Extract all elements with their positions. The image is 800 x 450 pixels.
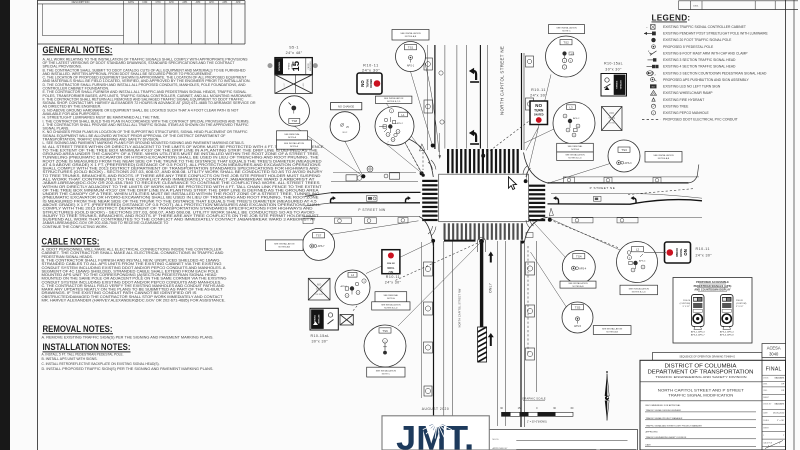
svg-text:ENFORCED: ENFORCED <box>310 61 312 71</box>
svg-text:24”x 48”: 24”x 48” <box>286 51 303 55</box>
svg-text:APR.: APR. <box>209 1 215 4</box>
svg-text:SEE INSTALLATION: SEE INSTALLATION <box>556 27 577 30</box>
svg-text:PEDESTRIAN SIGNALS (APS): PEDESTRIAN SIGNALS (APS) <box>694 285 732 288</box>
svg-text:RECOMMENDED FOR APPROVAL: RECOMMENDED FOR APPROVAL <box>646 404 682 407</box>
svg-text:9” X 12”: 9” X 12” <box>683 306 691 308</box>
svg-text:2: 2 <box>357 293 358 295</box>
svg-text:APS-5: APS-5 <box>574 325 582 328</box>
svg-text:1: 1 <box>387 135 388 137</box>
svg-text:NO: NO <box>317 283 322 287</box>
svg-text:L4: L4 <box>351 273 355 277</box>
svg-text:NORTH CAPITOL STREET AND P: NORTH CAPITOL STREET AND P STREET <box>658 388 744 392</box>
svg-text:TRAFFIC ENGINEERING SAFETY: TRAFFIC ENGINEERING SAFETY DIVISION <box>646 436 687 439</box>
svg-text:NOTE A: NOTE A <box>290 145 299 148</box>
svg-text:30”x 30”: 30”x 30” <box>605 67 622 71</box>
svg-text:P STREET NW: P STREET NW <box>358 208 385 212</box>
svg-text:NO: NO <box>388 270 393 274</box>
svg-text:08-05-2020: 08-05-2020 <box>773 412 785 414</box>
svg-text:MR. HARVEY ALEXANDER (HARVEY.A: MR. HARVEY ALEXANDER (HARVEY.ALEXANDER@D… <box>42 298 226 302</box>
svg-text:TURN: TURN <box>679 248 683 256</box>
svg-text:NOTES B,C,D: NOTES B,C,D <box>384 307 398 309</box>
svg-text:SEE INSTALLATION: SEE INSTALLATION <box>381 303 401 306</box>
svg-text:TRAFFIC SIGNAL PROJECT MANA: TRAFFIC SIGNAL PROJECT MANAGER <box>646 417 683 420</box>
svg-text:TURN: TURN <box>365 79 369 87</box>
svg-text:CHK.: CHK. <box>763 390 768 392</box>
svg-text:DATE: DATE <box>128 1 134 4</box>
svg-text:TURN: TURN <box>387 266 394 270</box>
svg-text:NO./%: NO./% <box>493 439 499 441</box>
svg-text:SEE INSTALLATION: SEE INSTALLATION <box>384 97 404 100</box>
svg-text:TS7: TS7 <box>316 234 322 238</box>
svg-text:6: 6 <box>577 126 578 128</box>
svg-text:COR.: COR. <box>142 2 148 4</box>
svg-text:24”x 30”: 24”x 30” <box>696 253 713 257</box>
svg-text:APR.: APR. <box>196 1 202 4</box>
svg-text:5: 5 <box>346 296 347 298</box>
svg-text:CONTINUE THE CONFLICTING WORK.: CONTINUE THE CONFLICTING WORK. <box>43 225 108 229</box>
svg-text:15: 15 <box>291 60 302 71</box>
svg-text:1: 1 <box>763 435 764 437</box>
svg-text:NORTH CAPITOL STREET NE: NORTH CAPITOL STREET NE <box>500 46 505 115</box>
svg-text:SEE INSTALLATION: SEE INSTALLATION <box>629 287 650 290</box>
svg-text:PROPOSED ACCESSIBLE: PROPOSED ACCESSIBLE <box>696 281 729 284</box>
svg-text:SCALE: SCALE <box>763 419 769 422</box>
svg-text:NLT: NLT <box>652 86 655 88</box>
svg-text:CHN.: CHN. <box>155 2 161 4</box>
svg-text:NOTES B,C,D: NOTES B,C,D <box>568 158 582 160</box>
svg-text:DSGN. BY: DSGN. BY <box>763 403 772 405</box>
svg-text:R10-15aL: R10-15aL <box>604 62 623 66</box>
svg-text:AND COUNTDOWN DISPLAY: AND COUNTDOWN DISPLAY <box>694 288 731 291</box>
svg-text:(CUSTOM): (CUSTOM) <box>736 303 747 305</box>
svg-text:TURNING: TURNING <box>616 80 618 89</box>
svg-text:TURN: TURN <box>608 117 615 120</box>
svg-text:EXISTING PENDANT POST STREETLI: EXISTING PENDANT POST STREETLIGHT POLE W… <box>663 32 769 36</box>
svg-text:4: 4 <box>397 132 398 134</box>
svg-text:NOTES A,B: NOTES A,B <box>573 285 585 288</box>
svg-text:LEGEND:: LEGEND: <box>652 13 691 22</box>
svg-text:SHEET: SHEET <box>763 427 769 429</box>
svg-text:FINAL: FINAL <box>766 366 782 372</box>
svg-text:APS-2: APS-2 <box>573 117 580 120</box>
svg-text:NOTES B,C,D: NOTES B,C,D <box>387 101 401 103</box>
svg-text:SEE INSTALLATION: SEE INSTALLATION <box>400 32 421 35</box>
svg-text:GAB/AMS: GAB/AMS <box>774 377 785 380</box>
svg-text:ONLY: ONLY <box>489 282 493 293</box>
svg-text:APR.: APR. <box>182 1 188 4</box>
svg-text:AUGUST 2020: AUGUST 2020 <box>422 407 449 411</box>
svg-text:TRAFFIC SIGNAL MODIFICATION: TRAFFIC SIGNAL MODIFICATION <box>668 393 734 397</box>
svg-text:R10-11: R10-11 <box>696 247 711 251</box>
svg-text:R10-11: R10-11 <box>531 88 546 92</box>
svg-text:1: 1 <box>567 130 568 132</box>
svg-text:APR.: APR. <box>236 1 242 4</box>
svg-text:DRN.: DRN. <box>763 384 768 386</box>
svg-text:APR.: APR. <box>222 1 228 4</box>
svg-text:GRAPHIC SCALE: GRAPHIC SCALE <box>522 397 546 401</box>
svg-text:EXISTING LED NO LEFT TURN SIGN: EXISTING LED NO LEFT TURN SIGN <box>663 85 721 89</box>
svg-text:NORTH CAPITOL STREET NW: NORTH CAPITOL STREET NW <box>458 288 461 327</box>
svg-text:NOTES A,B: NOTES A,B <box>606 330 618 333</box>
svg-text:NOTE A: NOTE A <box>288 136 297 139</box>
svg-text:S5-1: S5-1 <box>289 45 299 49</box>
svg-text:R10-15aL: R10-15aL <box>311 334 330 338</box>
svg-text:EXISTING 3 SECTION TRAFFIC SIG: EXISTING 3 SECTION TRAFFIC SIGNAL HEAD <box>663 58 736 62</box>
svg-text:ON RED: ON RED <box>675 248 678 258</box>
svg-text:GAB/AMS: GAB/AMS <box>774 402 785 405</box>
svg-text:SEE REMOVAL: SEE REMOVAL <box>284 133 300 136</box>
svg-text:DISTRICT OF COLUMBIA: DISTRICT OF COLUMBIA <box>665 363 738 369</box>
svg-text:C. INSTALL RETROREFLECTIVE BAC: C. INSTALL RETROREFLECTIVE BACKPLATE ON … <box>42 362 160 366</box>
svg-text:TS4: TS4 <box>576 255 582 259</box>
svg-text:APS-7: APS-7 <box>318 245 326 248</box>
svg-text:APS-3: APS-3 <box>625 162 633 165</box>
svg-text:APS-5, APS-7: APS-5, APS-7 <box>691 334 706 337</box>
svg-text:24”x 30”: 24”x 30” <box>362 69 380 73</box>
svg-text:2: 2 <box>642 267 643 269</box>
svg-text:APS-1: APS-1 <box>407 64 415 67</box>
svg-text:ON RED: ON RED <box>608 123 616 125</box>
svg-text:SEE INSTALLATION: SEE INSTALLATION <box>565 154 585 157</box>
svg-text:DSGN.: DSGN. <box>763 378 769 380</box>
svg-text:L1: L1 <box>401 113 405 117</box>
svg-text:9: 9 <box>573 135 574 137</box>
svg-text:SHEET: SHEET <box>763 397 769 399</box>
svg-text:NO: NO <box>609 111 614 115</box>
svg-text:EXISTING 2-SECTION COUNTDOWN P: EXISTING 2-SECTION COUNTDOWN PEDESTRIAN … <box>663 71 767 75</box>
svg-text:TS5: TS5 <box>575 306 581 310</box>
svg-text:7: 7 <box>632 270 633 272</box>
svg-text:APS-4: APS-4 <box>579 267 587 270</box>
svg-text:SEE INSTALLATION: SEE INSTALLATION <box>602 327 623 330</box>
svg-text:A. INSTALL 5 FT. TALL PEDESTRI: A. INSTALL 5 FT. TALL PEDESTRIAN PEDESTA… <box>42 352 124 356</box>
svg-text:EXISTING 8-FOOT MAST ARM WITH: EXISTING 8-FOOT MAST ARM WITH CAP AND CL… <box>663 51 748 55</box>
svg-text:1” = 30’: 1” = 30’ <box>777 420 785 422</box>
svg-text:NOTES A,B: NOTES A,B <box>278 246 290 249</box>
svg-text:TRAFFIC SIGNAL DESIGN ENGIN: TRAFFIC SIGNAL DESIGN ENGINEER <box>646 409 682 412</box>
svg-text:TS3: TS3 <box>621 148 627 152</box>
svg-text:PROPOSED APS PUSHBUTTON AND SI: PROPOSED APS PUSHBUTTON AND SIGN ASSEMBL… <box>663 78 749 82</box>
svg-text:APS-1, APS-3: APS-1, APS-3 <box>691 330 706 333</box>
svg-text:EXISTING FIRE HYDRANT: EXISTING FIRE HYDRANT <box>663 98 704 102</box>
svg-text:TRAFFIC ENGINEERING AND: TRAFFIC ENGINEERING AND SAFETY DIVISION <box>656 375 747 379</box>
svg-text:R10-26: R10-26 <box>683 300 691 302</box>
svg-text:TURN: TURN <box>534 109 544 113</box>
svg-text:EXISTING WHEELCHAIR RAMP: EXISTING WHEELCHAIR RAMP <box>663 91 713 95</box>
svg-text:(CUSTOM): (CUSTOM) <box>680 303 691 305</box>
svg-text:SEE INSTALLATION: SEE INSTALLATION <box>568 282 588 285</box>
svg-text:3: 3 <box>564 116 565 118</box>
svg-text:TRAFFIC SIGNAL AND STREET: TRAFFIC SIGNAL AND STREET LIGHT PROJECT … <box>646 425 703 428</box>
svg-text:TS8: TS8 <box>292 119 298 123</box>
svg-text:CABLE NOTES:: CABLE NOTES: <box>42 236 100 246</box>
svg-text:TS6: TS6 <box>382 329 388 333</box>
svg-text:24”x 30”: 24”x 30” <box>385 280 402 284</box>
svg-text:GENERAL NOTES:: GENERAL NOTES: <box>43 45 113 55</box>
svg-text:A. REMOVE EXISTING TRAFFIC SIG: A. REMOVE EXISTING TRAFFIC SIGN(S) PER T… <box>42 336 214 340</box>
svg-text:NOTE A: NOTE A <box>571 148 579 151</box>
svg-text:EXISTING 4 SECTION TRAFFIC SIG: EXISTING 4 SECTION TRAFFIC SIGNAL HEAD <box>663 65 736 69</box>
svg-text:TURN: TURN <box>316 288 323 291</box>
svg-text:ON RED: ON RED <box>534 114 544 117</box>
svg-text:SEE INSTALLATION: SEE INSTALLATION <box>284 142 305 145</box>
svg-text:APPROVED BY: APPROVED BY <box>493 447 509 450</box>
svg-text:VEHICLES: VEHICLES <box>621 80 623 90</box>
svg-text:R10-26: R10-26 <box>736 300 744 302</box>
svg-text:R10-11: R10-11 <box>363 63 379 67</box>
svg-text:24”x 30”: 24”x 30” <box>530 94 547 98</box>
svg-text:L2: L2 <box>636 248 640 252</box>
svg-text:NOTE C: NOTE C <box>382 373 391 375</box>
svg-text:APS-2: APS-2 <box>397 122 404 125</box>
svg-text:SEE INSTALLATION: SEE INSTALLATION <box>274 243 295 246</box>
svg-text:NOTES A,B: NOTES A,B <box>405 35 417 38</box>
svg-text:R10-11: R10-11 <box>386 275 401 279</box>
svg-text:J. THE CONTRACTOR SHALL PROVID: J. THE CONTRACTOR SHALL PROVIDE AND INST… <box>43 123 249 127</box>
svg-text:INSTALLATION NOTES:: INSTALLATION NOTES: <box>43 342 131 352</box>
svg-text:EXISTING TREE: EXISTING TREE <box>663 104 689 108</box>
svg-text:1” = 30’-0”(NOMS): 1” = 30’-0”(NOMS) <box>527 421 547 424</box>
svg-text:APS-6: APS-6 <box>341 285 348 288</box>
svg-text:DATE: DATE <box>646 444 652 447</box>
svg-text:DESCRIPTION: DESCRIPTION <box>72 0 90 4</box>
svg-text:ON RED: ON RED <box>370 79 373 89</box>
svg-text:SCHOOL: SCHOOL <box>279 61 281 71</box>
svg-text:TS2: TS2 <box>563 41 569 45</box>
svg-text:NOTE C: NOTE C <box>562 30 571 32</box>
svg-text:VEHICLES: VEHICLES <box>319 314 321 324</box>
svg-text:NO: NO <box>535 103 542 108</box>
svg-text:Ø: Ø <box>340 123 344 128</box>
svg-text:DSG.: DSG. <box>693 6 699 8</box>
svg-text:EXISTING 20 FOOT TRAFFIC SIGNA: EXISTING 20 FOOT TRAFFIC SIGNAL POLE <box>663 38 732 42</box>
svg-text:SEE REMOVAL: SEE REMOVAL <box>383 294 399 297</box>
svg-text:APS-4: APS-4 <box>639 260 646 263</box>
svg-text:P STREET NE: P STREET NE <box>590 186 616 190</box>
svg-text:ACESA: ACESA <box>767 345 781 350</box>
svg-text:D. INSTALL PROPOSED TRAFFIC SI: D. INSTALL PROPOSED TRAFFIC SIGN(S) PER … <box>42 367 214 371</box>
svg-text:9” X 12”: 9” X 12” <box>736 306 744 308</box>
svg-text:←: ← <box>646 25 649 29</box>
svg-text:B. INSTALL APS UNIT WITH SIGNS: B. INSTALL APS UNIT WITH SIGNS. <box>42 357 98 361</box>
svg-text:2: 2 <box>387 142 388 144</box>
svg-text:REMOVAL NOTES:: REMOVAL NOTES: <box>43 324 113 334</box>
svg-text:EXISTING TRAFFIC SIGNAL CONTRO: EXISTING TRAFFIC SIGNAL CONTROLLER CABIN… <box>663 25 746 29</box>
svg-text:ON RED: ON RED <box>386 262 395 264</box>
svg-text:8: 8 <box>392 140 393 142</box>
svg-text:NOTES A,B: NOTES A,B <box>658 157 670 160</box>
svg-text:SEQUENCE OF OPERATION DRAWI: SEQUENCE OF OPERATION DRAWING TS4894-G <box>679 356 735 359</box>
svg-text:APPROVED: APPROVED <box>646 430 659 433</box>
svg-text:PROPOSED 5’ PEDESTAL POLE: PROPOSED 5’ PEDESTAL POLE <box>663 45 714 49</box>
svg-text:3040: 3040 <box>769 351 779 356</box>
svg-text:ON RED: ON RED <box>315 294 323 296</box>
svg-text:LANE: LANE <box>302 82 305 87</box>
svg-text:SEE INSTALLATION: SEE INSTALLATION <box>376 370 397 373</box>
svg-text:SEE REMOVAL: SEE REMOVAL <box>568 145 584 148</box>
svg-text:SEE INSTALLATION: SEE INSTALLATION <box>653 154 674 157</box>
svg-text:EXISTING PEPCO MANHOLE: EXISTING PEPCO MANHOLE <box>663 111 709 115</box>
svg-text:NOTES B,C,D: NOTES B,C,D <box>632 291 646 293</box>
svg-text:APR.: APR. <box>169 1 175 4</box>
svg-text:TS1: TS1 <box>408 46 414 50</box>
svg-text:NOTE A: NOTE A <box>387 297 395 300</box>
svg-text:30”x 30”: 30”x 30” <box>312 339 329 343</box>
svg-text:L3: L3 <box>569 105 573 109</box>
svg-text:DEPARTMENT OF TRANSPORTATION: DEPARTMENT OF TRANSPORTATION <box>648 370 754 376</box>
svg-text:PROPOSED DDOT ELECTRICAL PVC C: PROPOSED DDOT ELECTRICAL PVC CONDUIT <box>663 118 738 122</box>
svg-text:APS-2, APS-4: APS-2, APS-4 <box>720 330 735 333</box>
svg-text:APS-6, APS-8: APS-6, APS-8 <box>720 334 735 337</box>
svg-text:NO CHANGE: NO CHANGE <box>338 105 354 109</box>
